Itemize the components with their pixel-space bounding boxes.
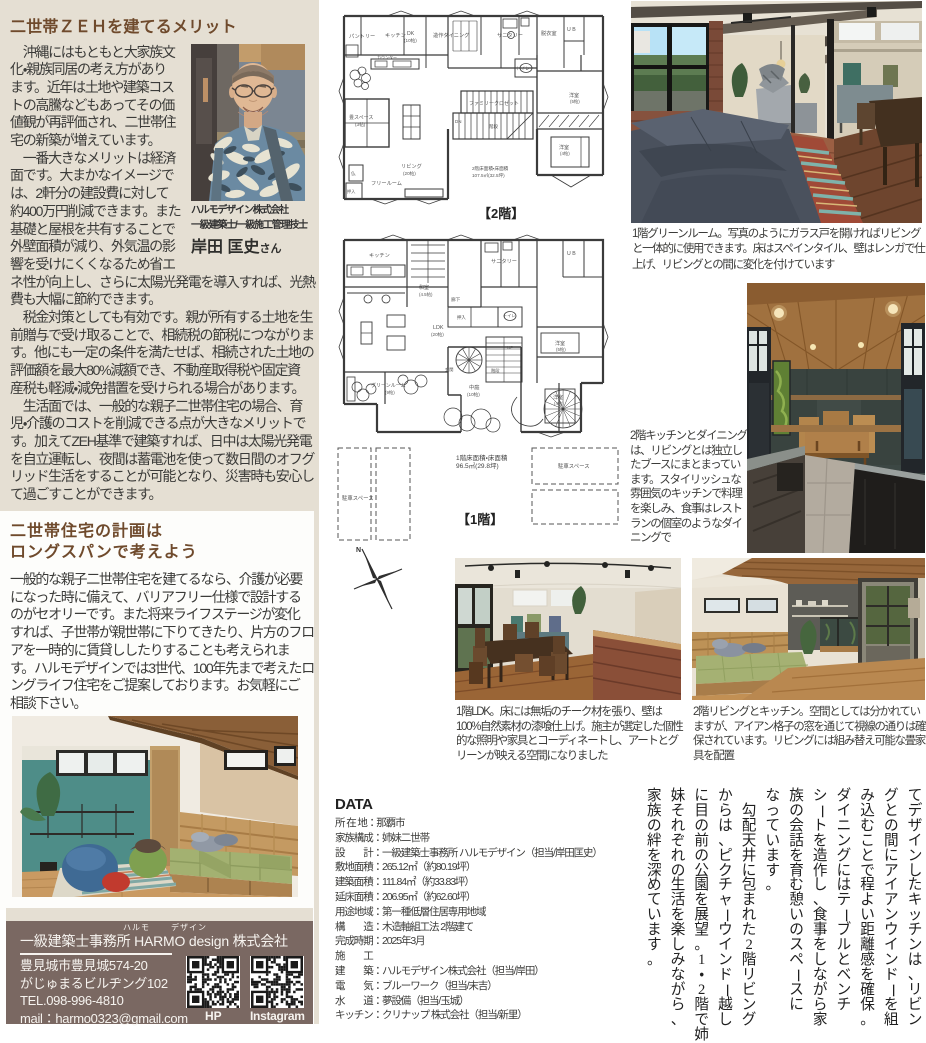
svg-text:(4帖): (4帖) [560,150,570,157]
svg-text:2階床面積・床面積: 2階床面積・床面積 [472,165,509,172]
svg-text:DK: DK [407,31,415,37]
svg-text:押入: 押入 [347,188,356,195]
svg-text:洋室: 洋室 [569,92,579,99]
svg-text:仏: 仏 [351,170,356,177]
svg-text:サニタリー: サニタリー [497,31,523,39]
svg-text:駐車スペース: 駐車スペース [558,462,590,470]
svg-text:階段: 階段 [491,367,500,374]
svg-text:(20帖): (20帖) [403,170,416,177]
svg-text:DN: DN [455,119,462,124]
svg-text:押入: 押入 [457,314,466,321]
svg-text:(3帖): (3帖) [355,121,366,128]
svg-text:トイレ: トイレ [516,66,530,71]
svg-text:リビング: リビング [401,162,422,170]
svg-text:玄関: 玄関 [445,366,453,373]
svg-text:LDK: LDK [433,325,444,331]
svg-text:(10帖): (10帖) [467,391,480,398]
svg-text:洋室: 洋室 [559,144,569,151]
svg-text:脱衣室: 脱衣室 [541,29,557,37]
svg-text:パントリー: パントリー [349,33,375,40]
svg-text:サニタリー: サニタリー [491,257,517,265]
svg-text:U B: U B [567,251,576,257]
svg-text:(20帖): (20帖) [431,331,444,338]
svg-text:洋室: 洋室 [553,394,563,401]
svg-text:U B: U B [567,27,576,33]
svg-text:107.5㎡(32.5坪): 107.5㎡(32.5坪) [472,172,505,179]
svg-text:キッチン: キッチン [369,252,390,259]
svg-text:廊下: 廊下 [451,296,461,303]
svg-text:(5帖): (5帖) [556,346,566,353]
svg-text:造作ダイニング: 造作ダイニング [433,31,469,39]
svg-text:カウンター: カウンター [377,54,397,60]
svg-text:駐車スペース: 駐車スペース [342,494,374,502]
svg-text:グリーンルーム: グリーンルーム [371,382,406,389]
svg-text:和室: 和室 [419,284,429,291]
svg-text:キッチン: キッチン [385,32,406,39]
svg-text:(5帖): (5帖) [570,98,580,105]
svg-text:中庭: 中庭 [469,383,480,391]
svg-text:畳スペース: 畳スペース [349,115,373,121]
svg-text:洋室: 洋室 [555,340,565,347]
svg-text:ファミリークロゼット: ファミリークロゼット [469,100,519,107]
svg-text:トイレ: トイレ [503,313,516,318]
svg-text:(10帖): (10帖) [404,37,417,44]
svg-text:N: N [356,547,361,554]
svg-text:階段: 階段 [489,123,498,130]
svg-text:UP: UP [507,345,513,350]
svg-text:(4.5帖): (4.5帖) [419,291,433,298]
svg-text:(4帖): (4帖) [554,400,564,407]
svg-text:(9帖): (9帖) [385,389,395,396]
svg-text:フリールーム: フリールーム [371,180,402,187]
